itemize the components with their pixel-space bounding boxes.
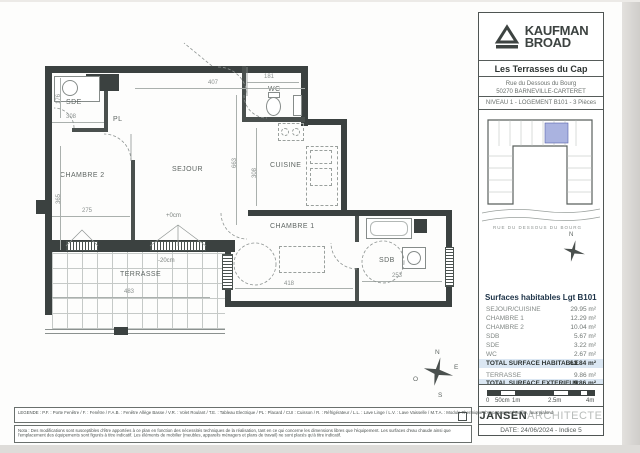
address-block: Rue du Dessous du Bourg 50270 BARNEVILLE… [479, 77, 603, 97]
surface-row: SDB5.67 m² [479, 332, 603, 341]
room-label-pl: PL [113, 116, 122, 123]
chambre1-furniture [279, 246, 325, 273]
compass-o: O [413, 376, 418, 383]
dim-ch2-w: 275 [82, 208, 92, 214]
note-text: Nota : Des modifications sont susceptibl… [18, 428, 456, 438]
wall-chambre1-top [248, 210, 452, 216]
surfaces-title: Surfaces habitables Lgt B101 [485, 293, 597, 302]
terrasse-post [114, 327, 128, 335]
compass-rose: N E S O [413, 349, 459, 399]
total-habitable-row: TOTAL SURFACE HABITABLE63.84 m² [479, 359, 603, 368]
terrasse-railing-1 [45, 329, 225, 330]
dim-line-ch1 [235, 288, 353, 289]
kitchen-appliance [310, 168, 332, 186]
wall-top [45, 66, 308, 73]
window-chambre1-terrasse [222, 254, 233, 290]
surface-row: WC2.67 m² [479, 350, 603, 359]
wall-cuisine-right [341, 119, 347, 216]
mta-unit [293, 95, 302, 116]
dim-line-wc [247, 82, 299, 83]
dim-line-top [135, 88, 305, 89]
terrasse-tiles [52, 252, 225, 329]
surface-row: CHAMBRE 210.04 m² [479, 323, 603, 332]
scale-label-4m: 4m [586, 398, 594, 404]
key-plan-street-label: RUE DU DESSOUS DU BOURG [493, 225, 582, 230]
terrasse-railing-2 [45, 333, 225, 334]
page-shadow-top [0, 0, 640, 2]
scanned-plan-page: { "header": { "brand_line1": "KAUFMAN", … [0, 0, 640, 453]
brand-line2: BROAD [525, 37, 589, 49]
toilet-bowl [266, 97, 281, 116]
level-info: NIVEAU 1 - LOGEMENT B101 - 3 Pièces [479, 97, 603, 109]
scale-label-1m: 1m [512, 398, 520, 404]
surfaces-table: Surfaces habitables Lgt B101 SEJOUR/CUIS… [479, 289, 603, 385]
scale-label-2m5: 2.5m [548, 398, 561, 404]
wall-bottom [225, 301, 452, 307]
wall-wc-bottom [242, 117, 305, 122]
dim-ch1-w: 418 [284, 281, 294, 287]
dim-cuisine-h: 308 [252, 168, 258, 178]
wall-sdb-left-upper [355, 216, 359, 242]
surface-row: CHAMBRE 112.29 m² [479, 314, 603, 323]
project-title: Les Terrasses du Cap [479, 61, 603, 76]
room-label-sdb: SDB [379, 257, 395, 264]
key-plan-compass [561, 238, 587, 264]
dim-sde-h: 176 [56, 94, 62, 104]
room-label-terrasse: TERRASSE [120, 271, 161, 278]
kitchen-burner-2 [292, 128, 300, 136]
dim-sejour-h: 663 [232, 158, 238, 168]
key-plan-graphic: N [479, 110, 603, 289]
page-shadow-bottom [0, 445, 640, 453]
key-plan-street-lines [482, 209, 600, 221]
floor-plan: SDE PL WC CHAMBRE 2 SEJOUR CUISINE CHAMB… [0, 0, 470, 453]
kaufman-broad-logo-icon [494, 24, 520, 50]
kitchen-sink [310, 150, 332, 164]
wall-chambre2-right [131, 160, 135, 240]
compass-e: E [454, 364, 459, 371]
kitchen-burner-1 [281, 128, 289, 136]
legend-strip: LEGENDE : P.F. : Porte Fenêtre / F. : Fe… [14, 407, 472, 423]
dim-wc: 181 [264, 74, 274, 80]
address-line1: Rue du Dessous du Bourg [479, 80, 603, 88]
dim-sde: 308 [66, 114, 76, 120]
room-label-cuisine: CUISINE [270, 162, 301, 169]
dim-line-terrasse [52, 297, 210, 298]
room-label-chambre2: CHAMBRE 2 [60, 172, 105, 179]
wall-hall-bottom [72, 128, 108, 132]
page-shadow-right [622, 0, 640, 453]
soffit-symbol [458, 412, 467, 421]
scale-label-50cm: 50cm [495, 398, 510, 404]
scale-bar-block: 0 50cm 1m 2.5m 4m [479, 385, 603, 407]
date-block: DATE: 24/06/2024 - Indice 5 [479, 425, 603, 436]
project-title-block: Les Terrasses du Cap [479, 61, 603, 77]
wall-left [45, 66, 52, 315]
compass-n: N [435, 349, 440, 356]
wall-stub-left [36, 200, 45, 214]
surface-row: SEJOUR/CUISINE29.95 m² [479, 305, 603, 314]
turning-circle-chambre1 [234, 243, 276, 285]
dim-terrasse-w: 483 [124, 289, 134, 295]
dim-sdb-w: 253 [392, 273, 402, 279]
sdb-basin [407, 251, 421, 265]
room-label-chambre1: CHAMBRE 1 [270, 223, 315, 230]
room-label-sde: SDE [66, 99, 82, 106]
title-block-sidebar: KAUFMAN BROAD Les Terrasses du Cap Rue d… [478, 12, 604, 436]
level-info-block: NIVEAU 1 - LOGEMENT B101 - 3 Pièces [479, 97, 603, 110]
shower-drain [62, 80, 78, 96]
note-strip: Nota : Des modifications sont susceptibl… [14, 425, 472, 443]
dim-ch2-h: 365 [56, 194, 62, 204]
date-line: DATE: 24/06/2024 - Indice 5 [479, 425, 603, 436]
window-chambre2 [66, 241, 98, 251]
dim-line-ch2-w [52, 216, 130, 217]
window-sejour [150, 241, 206, 251]
scale-label-0: 0 [486, 398, 489, 404]
compass-s: S [438, 392, 443, 399]
level-annotation-20: -20cm [158, 258, 175, 264]
bathtub-inner [370, 221, 408, 236]
wall-sdb-left-lower [355, 268, 359, 301]
scale-bar [487, 390, 595, 396]
sdb-duct [414, 219, 427, 233]
wall-wc-left [242, 66, 246, 120]
dim-top: 407 [208, 80, 218, 86]
key-plan-compass-n: N [569, 232, 573, 238]
dim-line-sdb [362, 281, 442, 282]
address-line2: 50270 BARNEVILLE-CARTERET [479, 88, 603, 96]
key-plan-block: N RUE DU DESSOUS DU BOURG [479, 110, 603, 289]
level-annotation-0: +0cm [166, 213, 181, 219]
legend-text: LEGENDE : P.F. : Porte Fenêtre / F. : Fe… [18, 410, 553, 415]
room-label-sejour: SEJOUR [172, 166, 203, 173]
window-sdb [445, 247, 454, 287]
dim-line-sde [52, 122, 104, 123]
key-plan-highlighted-unit [545, 123, 568, 143]
brand-block: KAUFMAN BROAD [479, 13, 603, 61]
wall-pl-right [104, 91, 108, 132]
surface-row: SDE3.22 m² [479, 341, 603, 350]
